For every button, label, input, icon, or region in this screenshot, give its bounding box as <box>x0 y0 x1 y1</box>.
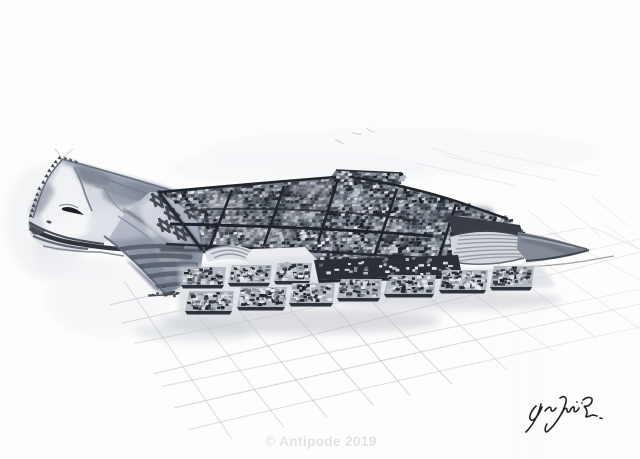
svg-text:© Antipode 2019: © Antipode 2019 <box>265 434 376 449</box>
